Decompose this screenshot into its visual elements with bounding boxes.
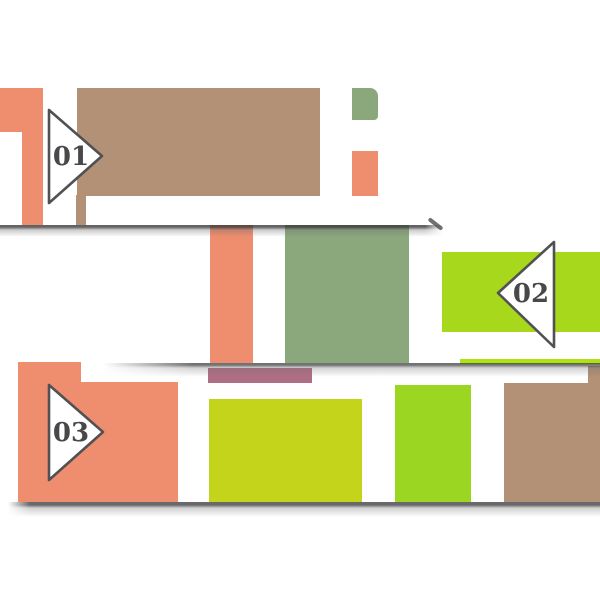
middle-olive-square [285, 225, 409, 363]
bottom-lime-yellow-rectangle [209, 399, 362, 502]
top-salmon-corner-leg [22, 131, 43, 225]
step-02-label: 02 [513, 279, 549, 309]
banner-bottom-shadow [8, 502, 600, 517]
step-01-label: 01 [53, 142, 89, 172]
bottom-salmon-tab [18, 362, 81, 383]
bottom-tan-rectangle [504, 383, 600, 502]
middle-lime-edge-strip [460, 359, 600, 364]
top-sage-small-square [352, 88, 378, 120]
step-01-arrow-marker[interactable]: 01 [46, 106, 108, 208]
top-salmon-small-square [352, 151, 378, 196]
bottom-tan-tab [588, 366, 600, 384]
step-03-arrow-marker[interactable]: 03 [46, 381, 108, 485]
middle-salmon-bar [210, 225, 253, 363]
infographic-canvas: 01 02 03 [0, 0, 600, 600]
step-02-arrow-marker[interactable]: 02 [494, 238, 558, 351]
top-tan-rectangle [77, 88, 320, 196]
top-salmon-corner-block [0, 88, 43, 132]
bottom-green-rectangle [395, 385, 471, 502]
bottom-mauve-bar [208, 368, 312, 383]
step-03-label: 03 [53, 418, 89, 448]
